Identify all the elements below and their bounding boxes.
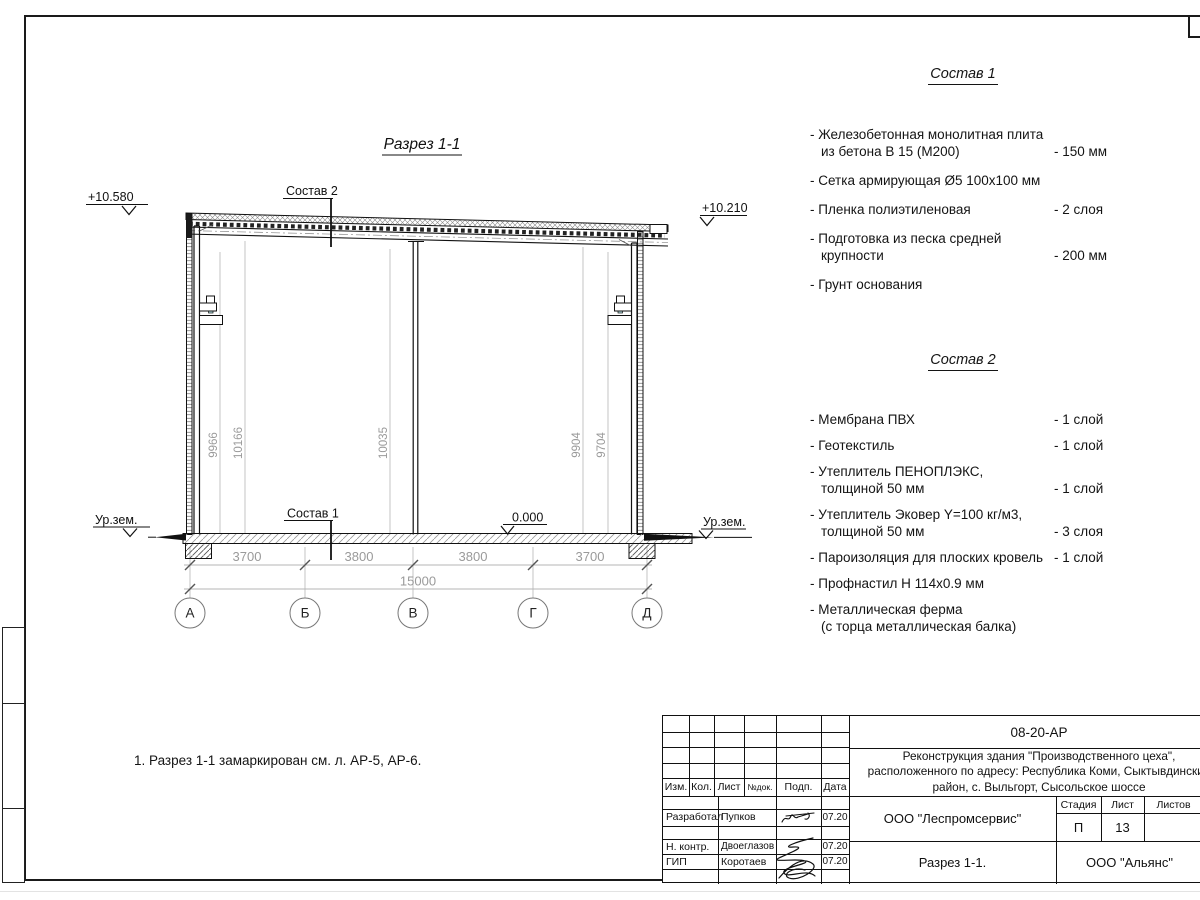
item-value: - 1 слой	[1054, 437, 1116, 454]
item-name: - Сетка армирующая Ø5 100х100 мм	[810, 172, 1054, 189]
signature-developer	[778, 810, 820, 826]
axis-g: Г	[529, 606, 537, 621]
row-name: Двоеглазов	[721, 841, 774, 852]
list-item: - Пленка полиэтиленовая- 2 слоя	[810, 201, 1116, 218]
col-podp: Подп.	[776, 778, 821, 796]
item-name: - Геотекстиль	[810, 437, 1054, 454]
left-bracket	[200, 296, 223, 325]
item-name: - Грунт основания	[810, 276, 1054, 293]
col-kol: Кол.	[689, 778, 714, 796]
leader-labels: Состав 2 Состав 1	[283, 184, 339, 560]
composition-list-1: Состав 1 - Железобетонная монолитная пли…	[810, 66, 1116, 305]
axis-d: Д	[642, 606, 651, 621]
composition-list-2: Состав 2 - Мембрана ПВХ- 1 слой - Геотек…	[810, 352, 1116, 644]
vdim-10035: 10035	[378, 427, 390, 459]
item-name: - Утеплитель Эковер Y=100 кг/м3, толщино…	[810, 506, 1054, 540]
col-data: Дата	[821, 778, 849, 796]
dim-3700-2: 3700	[576, 549, 605, 564]
section-title: Разрез 1-1	[382, 136, 462, 155]
sheet-value: 13	[1101, 813, 1144, 841]
list-item: - Геотекстиль- 1 слой	[810, 437, 1116, 454]
drawing-sheet: 9966 10166 10035 9904 9704 3700 3800 380…	[0, 0, 1200, 900]
list-item: - Утеплитель Эковер Y=100 кг/м3, толщино…	[810, 506, 1116, 540]
roof-end-cap	[650, 225, 667, 234]
extension-lines	[190, 241, 647, 598]
list-item: - Грунт основания	[810, 276, 1116, 293]
row-role: ГИП	[666, 856, 687, 868]
vdim-9966: 9966	[208, 432, 220, 458]
leader-comp1: Состав 1	[287, 507, 339, 521]
list-item: - Мембрана ПВХ- 1 слой	[810, 411, 1116, 428]
elev-left-top: +10.580	[88, 190, 134, 204]
list-item: - Профнастил Н 114х0.9 мм	[810, 575, 1116, 592]
row-date: 07.20	[821, 839, 849, 854]
org-designer: ООО "Леспромсервис"	[849, 796, 1056, 841]
col-list: Лист	[714, 778, 744, 796]
doc-number: 08-20-АР	[849, 716, 1200, 748]
stage-value: П	[1056, 813, 1101, 841]
comp2-title: Состав 2	[810, 352, 1116, 369]
vdim-9704: 9704	[596, 432, 608, 458]
sheet-note: 1. Разрез 1-1 замаркирован см. л. АР-5, …	[134, 753, 421, 768]
item-name: - Металлическая ферма (с торца металличе…	[810, 601, 1054, 635]
dim-3800-1: 3800	[345, 549, 374, 564]
row-date: 07.20	[821, 809, 849, 826]
vertical-dimensions: 9966 10166 10035 9904 9704	[208, 427, 608, 459]
row-role: Н. контр.	[666, 841, 709, 853]
list-item: - Пароизоляция для плоских кровель- 1 сл…	[810, 549, 1116, 566]
row-name: Коротаев	[721, 856, 766, 868]
item-name: - Железобетонная монолитная плита из бет…	[810, 126, 1054, 160]
project-name: Реконструкция здания "Производственного …	[849, 748, 1200, 796]
item-name: - Утеплитель ПЕНОПЛЭКС, толщиной 50 мм	[810, 463, 1054, 497]
item-name: - Пароизоляция для плоских кровель	[810, 549, 1054, 566]
item-name: - Подготовка из песка средней крупности	[810, 230, 1054, 264]
elev-right-top: +10.210	[702, 201, 748, 215]
drawing-name: Разрез 1-1.	[849, 841, 1056, 884]
vdim-10166: 10166	[233, 427, 245, 459]
stage-label: Стадия	[1056, 796, 1101, 813]
title-block: Изм. Кол. Лист №док. Подп. Дата Разработ…	[662, 715, 1200, 883]
item-value: - 200 мм	[1054, 247, 1116, 264]
vdim-9904: 9904	[571, 432, 583, 458]
item-value: - 1 слой	[1054, 411, 1116, 428]
item-value: - 2 слоя	[1054, 201, 1116, 218]
item-value: - 150 мм	[1054, 143, 1116, 160]
axis-b: Б	[301, 606, 310, 621]
roof	[186, 213, 668, 246]
item-value: - 3 слоя	[1054, 523, 1116, 540]
comp1-title: Состав 1	[810, 66, 1116, 83]
row-role: Разработал	[666, 811, 723, 823]
axis-v: В	[408, 606, 417, 621]
item-value: - 1 слой	[1054, 480, 1116, 497]
list-item: - Утеплитель ПЕНОПЛЭКС, толщиной 50 мм- …	[810, 463, 1116, 497]
dim-15000: 15000	[400, 574, 436, 589]
sheet-label: Лист	[1101, 796, 1144, 813]
list-item: - Подготовка из песка средней крупности-…	[810, 230, 1116, 264]
list-item: - Металлическая ферма (с торца металличе…	[810, 601, 1116, 635]
dim-3700-1: 3700	[233, 549, 262, 564]
list-item: - Сетка армирующая Ø5 100х100 мм	[810, 172, 1116, 189]
ground-label-left: Ур.зем.	[95, 513, 137, 527]
axis-bubbles: А Б В Г Д	[175, 598, 662, 628]
right-wall	[619, 232, 643, 535]
left-wall	[187, 214, 214, 535]
sheets-label: Листов	[1144, 796, 1200, 813]
drawing-title: Разрез 1-1	[384, 136, 461, 153]
axis-a: А	[185, 606, 194, 621]
col-izm: Изм.	[663, 778, 689, 796]
leader-comp2: Состав 2	[286, 184, 338, 198]
list-item: - Железобетонная монолитная плита из бет…	[810, 126, 1116, 160]
right-bracket	[608, 296, 632, 325]
middle-column	[408, 242, 424, 535]
row-name: Пупков	[721, 811, 756, 823]
row-date: 07.20	[821, 854, 849, 869]
elev-floor: 0.000	[512, 511, 543, 525]
org-customer: ООО "Альянс"	[1056, 841, 1200, 884]
item-name: - Профнастил Н 114х0.9 мм	[810, 575, 1054, 592]
item-name: - Мембрана ПВХ	[810, 411, 1054, 428]
item-name: - Пленка полиэтиленовая	[810, 201, 1054, 218]
signature-approver	[769, 834, 823, 884]
dimension-chain: 3700 3800 3800 3700 15000	[184, 549, 652, 594]
item-value: - 1 слой	[1054, 549, 1116, 566]
dim-3800-2: 3800	[459, 549, 488, 564]
col-ndok: №док.	[744, 778, 776, 796]
ground-label-right: Ур.зем.	[703, 515, 745, 529]
